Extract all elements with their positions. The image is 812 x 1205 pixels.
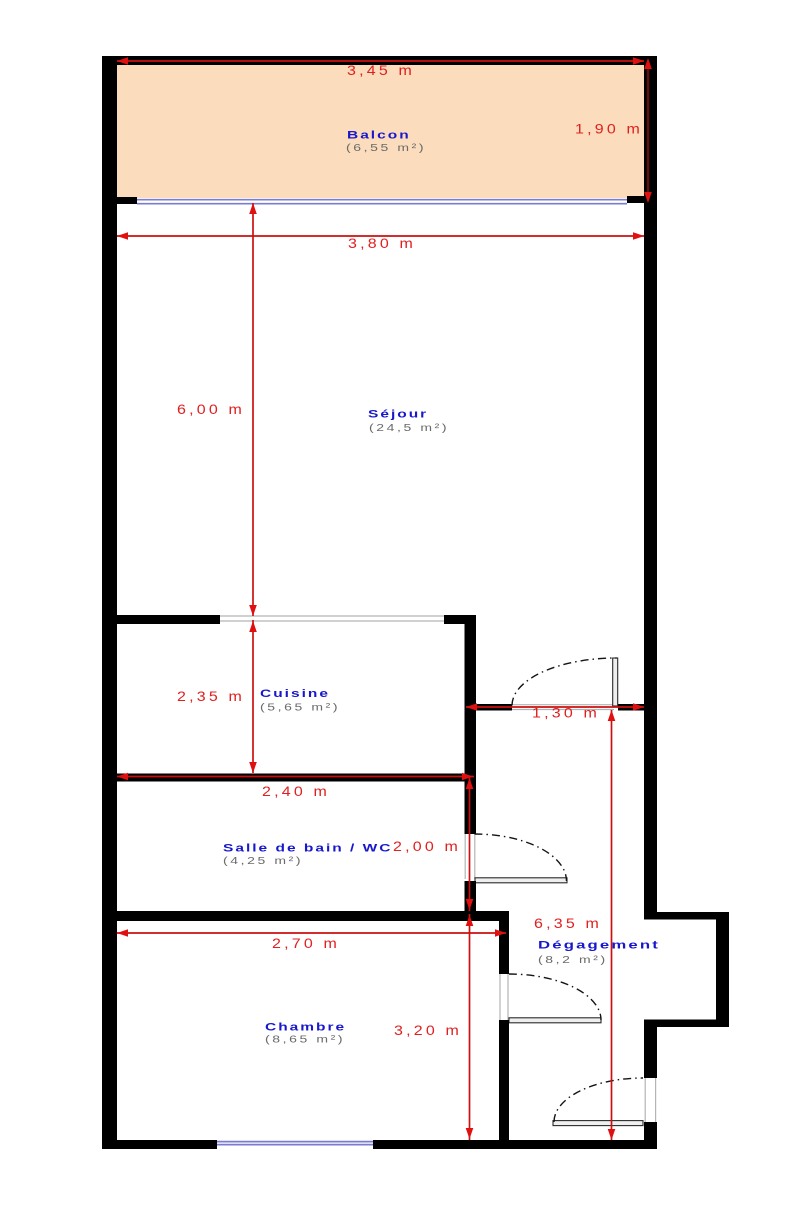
svg-text:(6,55 m²): (6,55 m²): [346, 142, 426, 154]
svg-text:(4,25 m²): (4,25 m²): [223, 855, 303, 867]
svg-text:2,40 m: 2,40 m: [262, 784, 330, 800]
svg-text:Balcon: Balcon: [347, 129, 411, 141]
svg-text:(8,65 m²): (8,65 m²): [265, 1033, 345, 1045]
svg-text:(24,5 m²): (24,5 m²): [369, 422, 449, 434]
svg-text:(8,2 m²): (8,2 m²): [538, 954, 608, 966]
svg-text:1,90 m: 1,90 m: [575, 121, 643, 137]
svg-text:3,80 m: 3,80 m: [348, 236, 416, 252]
svg-text:6,35 m: 6,35 m: [534, 916, 602, 932]
svg-text:3,20 m: 3,20 m: [394, 1023, 462, 1039]
svg-text:Chambre: Chambre: [265, 1021, 346, 1033]
svg-text:Séjour: Séjour: [368, 408, 428, 420]
svg-text:Salle de bain / WC: Salle de bain / WC: [223, 842, 392, 854]
svg-text:2,00 m: 2,00 m: [393, 839, 461, 855]
svg-text:6,00 m: 6,00 m: [177, 402, 245, 418]
svg-text:2,35 m: 2,35 m: [177, 689, 245, 705]
svg-text:Dégagement: Dégagement: [538, 939, 660, 952]
svg-text:3,45 m: 3,45 m: [347, 63, 415, 79]
svg-text:Cuisine: Cuisine: [260, 687, 330, 699]
svg-text:(5,65 m²): (5,65 m²): [260, 701, 340, 713]
svg-text:2,70 m: 2,70 m: [272, 936, 340, 952]
svg-text:1,30 m: 1,30 m: [532, 705, 600, 721]
